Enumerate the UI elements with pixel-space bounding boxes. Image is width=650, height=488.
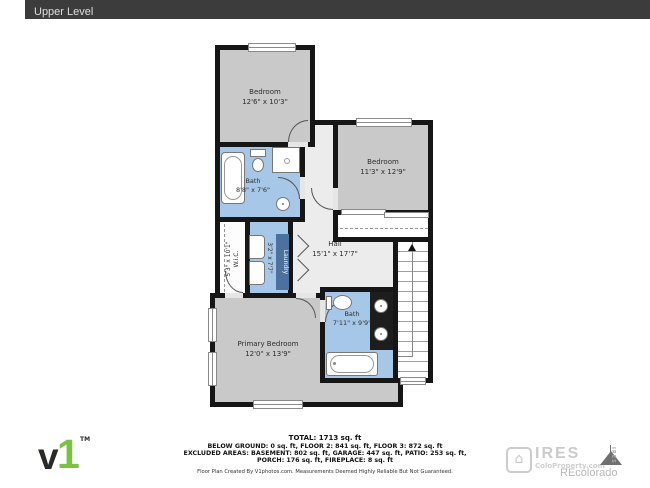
floor-patch [316,383,325,402]
sink-icon [374,327,388,341]
window [356,118,412,127]
shower-icon [272,147,300,173]
trademark-symbol: TM [80,436,90,443]
v1-logo-one: 1 [57,434,80,475]
room-primary-nook [316,378,403,407]
stairs-up-arrow-icon [408,244,416,251]
room-label-bedroom-top: Bedroom 12'6" x 10'3" [215,88,315,108]
toilet-icon [250,149,266,157]
toilet-icon [252,158,264,172]
window [248,43,296,52]
door-gap [333,188,338,210]
v1-logo-v: v [38,438,59,475]
house-icon: ⌂ [506,447,532,473]
room-label-primary-bedroom: Primary Bedroom 12'0" x 13'9" [210,340,326,360]
page-title: Upper Level [25,3,93,22]
stairs-steps [398,242,428,378]
room-label-hall: Hall 15'1" x 17'7" [300,240,370,260]
room-label-bath-bottom: Bath 7'11" x 9'9" [321,310,383,328]
door-gap [225,293,243,298]
closet-rod [340,228,428,229]
ires-watermark: ⌂ IRES ColoProperty.com IRES REcolorado [504,445,646,485]
sliding-door [341,209,386,215]
bathtub-icon [326,352,378,376]
toilet-icon [326,296,332,310]
window [208,308,217,342]
room-label-laundry: Laundry [277,228,289,296]
recolorado-text: REcolorado [560,467,617,479]
floor-plan-page: Upper Level [0,0,650,488]
window [253,400,303,409]
room-label-laundry-dims: 3'2" x 7'7" [263,232,273,284]
header-bar: Upper Level [25,0,650,19]
stairs-rail-line [412,242,413,357]
room-label-bedroom-right: Bedroom 11'3" x 12'9" [333,158,433,178]
window [400,377,426,385]
sink-icon [276,197,290,211]
sliding-door [384,212,429,218]
stairs-rail-line [398,356,413,357]
ires-logo-text: IRES [535,445,580,463]
v1photos-logo: v 1 TM [38,434,108,484]
ires-vertical-text: IRES [610,447,616,464]
wall-segment [310,120,338,125]
room-label-bath-top: Bath 8'8" x 7'6" [222,177,284,195]
toilet-icon [333,295,352,310]
room-label-wic: 5'3" x 10'1" W.i.C. [225,230,241,288]
door-gap [300,177,305,199]
